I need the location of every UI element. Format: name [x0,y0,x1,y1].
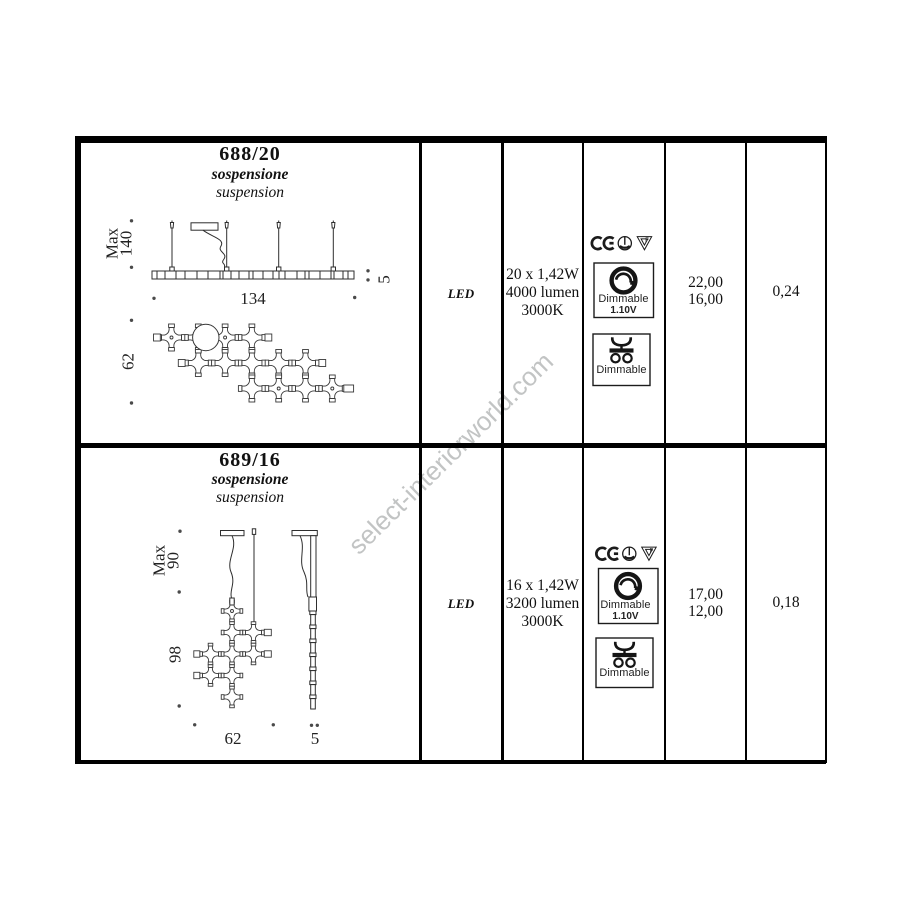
svg-text:F: F [645,238,649,244]
svg-text:F: F [650,549,654,555]
